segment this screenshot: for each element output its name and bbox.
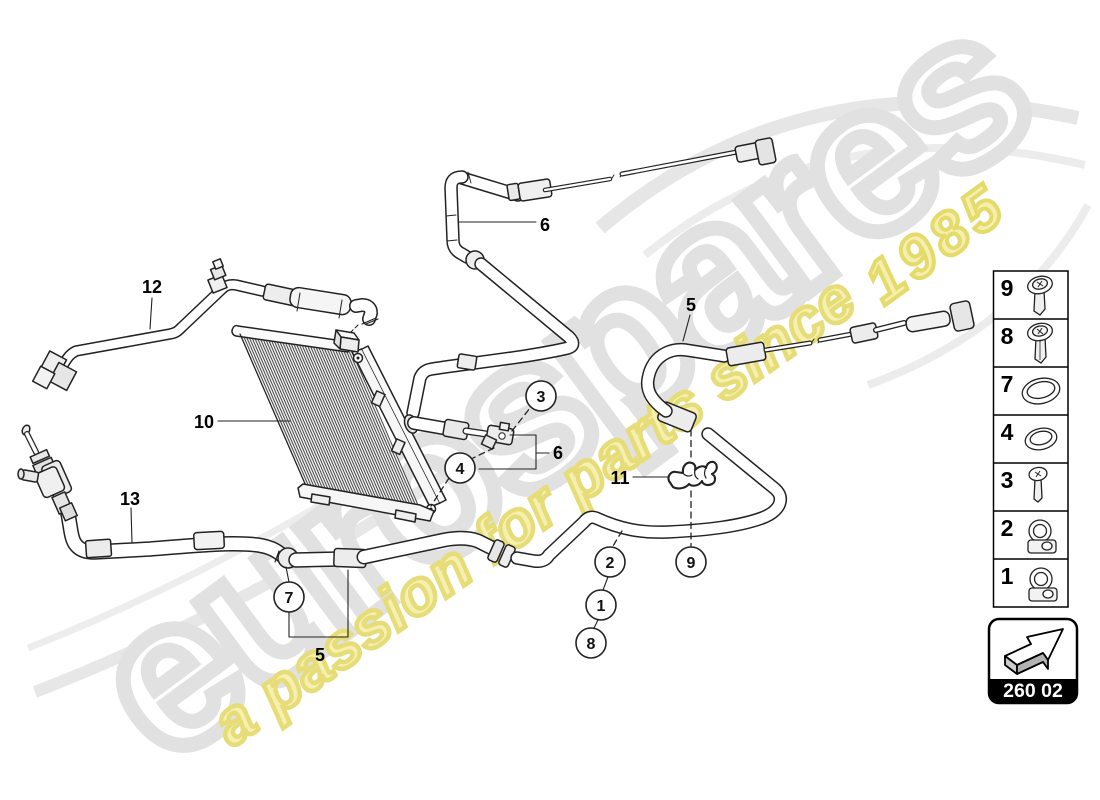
svg-text:4: 4 [456, 461, 465, 478]
svg-text:6: 6 [553, 443, 563, 463]
svg-text:9: 9 [1001, 275, 1014, 301]
svg-text:2: 2 [1001, 515, 1014, 541]
svg-text:9: 9 [687, 555, 696, 572]
svg-text:5: 5 [315, 645, 325, 665]
svg-text:3: 3 [537, 389, 546, 406]
svg-text:1: 1 [1001, 563, 1014, 589]
svg-text:8: 8 [587, 636, 596, 653]
svg-text:13: 13 [120, 489, 140, 509]
svg-text:10: 10 [194, 412, 214, 432]
svg-text:6: 6 [540, 215, 550, 235]
svg-text:11: 11 [610, 468, 629, 488]
svg-text:1: 1 [597, 598, 606, 615]
svg-text:2: 2 [606, 555, 615, 572]
svg-text:7: 7 [1001, 371, 1014, 397]
svg-text:260 02: 260 02 [1003, 680, 1063, 702]
svg-text:3: 3 [1001, 467, 1014, 493]
svg-text:12: 12 [142, 277, 162, 297]
svg-text:7: 7 [285, 590, 294, 607]
svg-text:8: 8 [1001, 323, 1014, 349]
svg-text:5: 5 [686, 295, 696, 315]
svg-text:4: 4 [1001, 419, 1014, 445]
